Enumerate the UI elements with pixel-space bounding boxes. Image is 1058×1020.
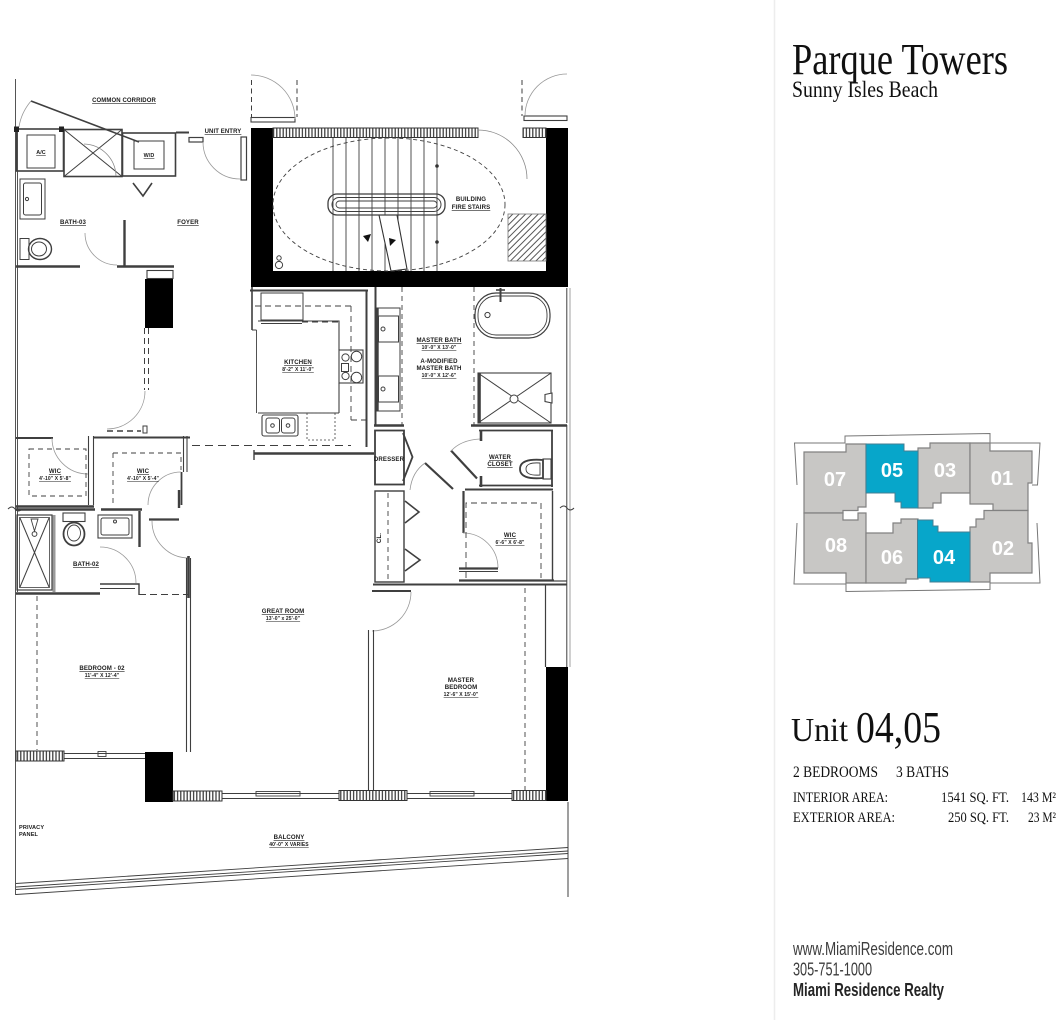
- svg-text:BATH-02: BATH-02: [73, 561, 99, 568]
- svg-text:Miami Residence Realty: Miami Residence Realty: [793, 979, 945, 1000]
- svg-text:MASTER BATH: MASTER BATH: [417, 365, 462, 372]
- svg-text:10'-0" X 13'-0": 10'-0" X 13'-0": [422, 345, 457, 351]
- svg-text:4'-10" X 5'-8": 4'-10" X 5'-8": [39, 476, 71, 482]
- svg-text:BEDROOM - 02: BEDROOM - 02: [79, 665, 125, 672]
- svg-text:BUILDING: BUILDING: [456, 196, 486, 203]
- svg-text:EXTERIOR AREA:: EXTERIOR AREA:: [793, 810, 895, 826]
- svg-text:FIRE STAIRS: FIRE STAIRS: [452, 204, 491, 211]
- svg-text:WIC: WIC: [137, 468, 150, 475]
- svg-text:A-MODIFIED: A-MODIFIED: [420, 358, 458, 365]
- svg-text:04: 04: [933, 547, 956, 569]
- svg-text:06: 06: [881, 547, 903, 569]
- svg-text:A/C: A/C: [36, 150, 46, 156]
- svg-text:143 M²: 143 M²: [1021, 790, 1057, 806]
- svg-text:MASTER BATH: MASTER BATH: [417, 337, 462, 344]
- svg-text:WATER: WATER: [489, 454, 512, 461]
- svg-text:PANEL: PANEL: [19, 832, 39, 838]
- svg-text:305-751-1000: 305-751-1000: [793, 959, 872, 980]
- svg-text:8'-2" X 11'-0": 8'-2" X 11'-0": [282, 367, 314, 373]
- svg-text:W/D: W/D: [144, 153, 155, 159]
- svg-text:BALCONY: BALCONY: [274, 834, 305, 841]
- svg-text:BEDROOM: BEDROOM: [445, 684, 478, 691]
- svg-text:04,05: 04,05: [856, 703, 941, 752]
- svg-text:FOYER: FOYER: [177, 219, 199, 226]
- svg-text:6'-6" X 6'-8": 6'-6" X 6'-8": [496, 540, 526, 546]
- svg-text:WIC: WIC: [504, 532, 517, 539]
- svg-text:10'-0" X 12'-6": 10'-0" X 12'-6": [422, 373, 457, 379]
- svg-text:COMMON CORRIDOR: COMMON CORRIDOR: [92, 98, 156, 104]
- svg-text:Sunny Isles Beach: Sunny Isles Beach: [792, 77, 938, 102]
- svg-text:4'-10" X 5'-4": 4'-10" X 5'-4": [127, 476, 159, 482]
- svg-text:12'-6" X 15'-0": 12'-6" X 15'-0": [444, 692, 479, 698]
- svg-text:WIC: WIC: [49, 468, 62, 475]
- svg-text:www.MiamiResidence.com: www.MiamiResidence.com: [792, 938, 953, 959]
- svg-text:DRESSER: DRESSER: [374, 456, 405, 463]
- svg-text:23 M²: 23 M²: [1028, 810, 1057, 826]
- svg-text:KITCHEN: KITCHEN: [284, 359, 312, 366]
- svg-text:PRIVACY: PRIVACY: [19, 825, 44, 831]
- svg-text:13'-0" x 25'-0": 13'-0" x 25'-0": [266, 616, 301, 622]
- svg-text:250 SQ. FT.: 250 SQ. FT.: [948, 810, 1009, 826]
- svg-text:11'-4" X 12'-4": 11'-4" X 12'-4": [85, 673, 120, 679]
- svg-text:2 BEDROOMS: 2 BEDROOMS: [793, 764, 878, 781]
- svg-text:INTERIOR AREA:: INTERIOR AREA:: [793, 790, 888, 806]
- svg-text:CLOSET: CLOSET: [487, 461, 512, 468]
- svg-text:3 BATHS: 3 BATHS: [896, 764, 949, 781]
- svg-text:03: 03: [934, 460, 956, 482]
- svg-text:BATH-03: BATH-03: [60, 219, 86, 226]
- svg-text:40'-0" X VARIES: 40'-0" X VARIES: [269, 842, 309, 848]
- svg-text:07: 07: [824, 469, 846, 491]
- svg-text:08: 08: [825, 535, 847, 557]
- svg-text:GREAT ROOM: GREAT ROOM: [262, 608, 305, 615]
- svg-text:UNIT ENTRY: UNIT ENTRY: [205, 129, 242, 135]
- svg-text:CL.: CL.: [376, 533, 383, 543]
- svg-text:1541 SQ. FT.: 1541 SQ. FT.: [941, 790, 1009, 806]
- svg-text:01: 01: [991, 468, 1013, 490]
- svg-text:05: 05: [881, 460, 903, 482]
- svg-text:MASTER: MASTER: [448, 677, 475, 684]
- svg-text:02: 02: [992, 538, 1014, 560]
- svg-text:Unit: Unit: [791, 712, 849, 749]
